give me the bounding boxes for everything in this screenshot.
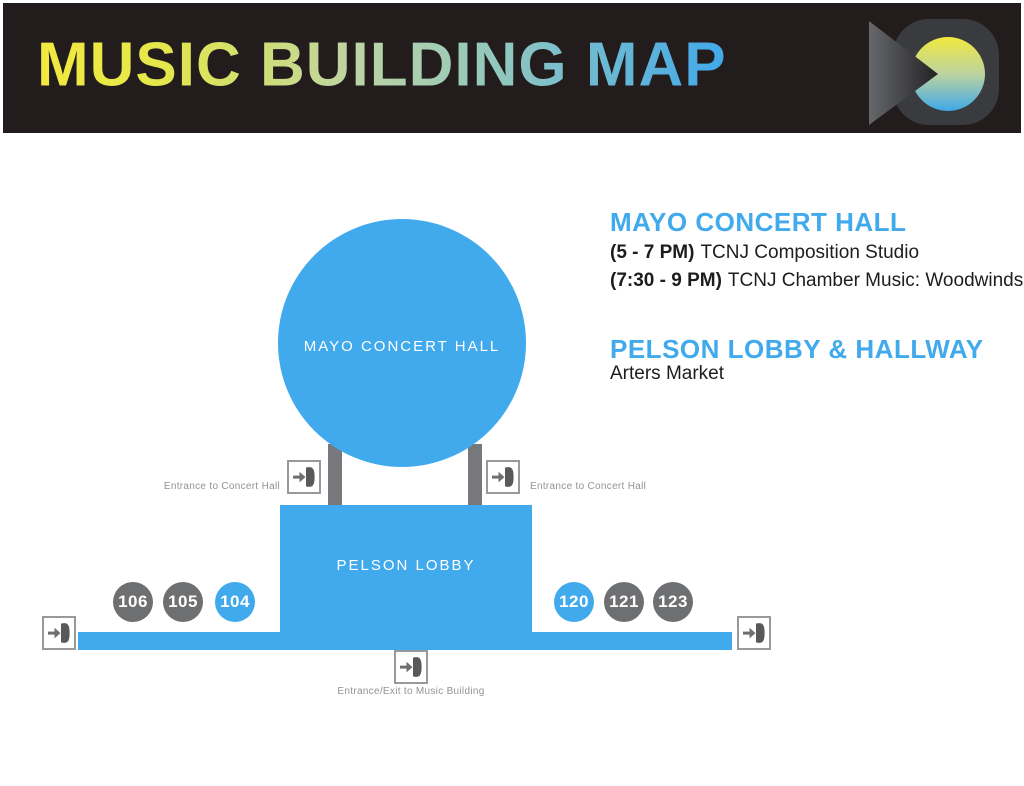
event-time: (5 - 7 PM) [610,242,694,263]
door-icon [394,650,428,684]
schedule-event: (7:30 - 9 PM)TCNJ Chamber Music: Woodwin… [610,270,1023,292]
room-circle-106: 106 [113,582,153,622]
schedule-event: Arters Market [610,363,724,385]
pelson-lobby-label: PELSON LOBBY [280,557,532,574]
room-circle-104: 104 [215,582,255,622]
schedule-event: (5 - 7 PM)TCNJ Composition Studio [610,242,919,264]
room-circle-120: 120 [554,582,594,622]
door-icon [486,460,520,494]
schedule-heading-pelson: PELSON LOBBY & HALLWAY [610,334,984,365]
door-icon [42,616,76,650]
hall-connector-right [468,444,482,508]
pelson-lobby-shape: PELSON LOBBY [280,505,532,650]
arts-center-logo [861,13,1009,132]
room-circle-123: 123 [653,582,693,622]
music-building-map-page: MUSIC BUILDING MAP [0,0,1024,786]
event-title: Arters Market [610,363,724,384]
event-title: TCNJ Composition Studio [700,242,919,263]
mayo-concert-hall-shape: MAYO CONCERT HALL [278,219,526,467]
room-circle-121: 121 [604,582,644,622]
event-title: TCNJ Chamber Music: Woodwinds [728,270,1023,291]
entrance-left-label: Entrance to Concert Hall [120,481,280,492]
door-icon [287,460,321,494]
room-circle-105: 105 [163,582,203,622]
mayo-concert-hall-label: MAYO CONCERT HALL [304,338,501,355]
event-time: (7:30 - 9 PM) [610,270,722,291]
door-icon [737,616,771,650]
schedule-heading-mayo: MAYO CONCERT HALL [610,207,906,238]
arts-center-logo-icon [861,13,1009,127]
entrance-bottom-label: Entrance/Exit to Music Building [310,686,512,697]
page-title: MUSIC BUILDING MAP [37,30,727,101]
entrance-right-label: Entrance to Concert Hall [530,481,646,492]
header-bar: MUSIC BUILDING MAP [3,3,1021,133]
hall-connector-left [328,444,342,508]
